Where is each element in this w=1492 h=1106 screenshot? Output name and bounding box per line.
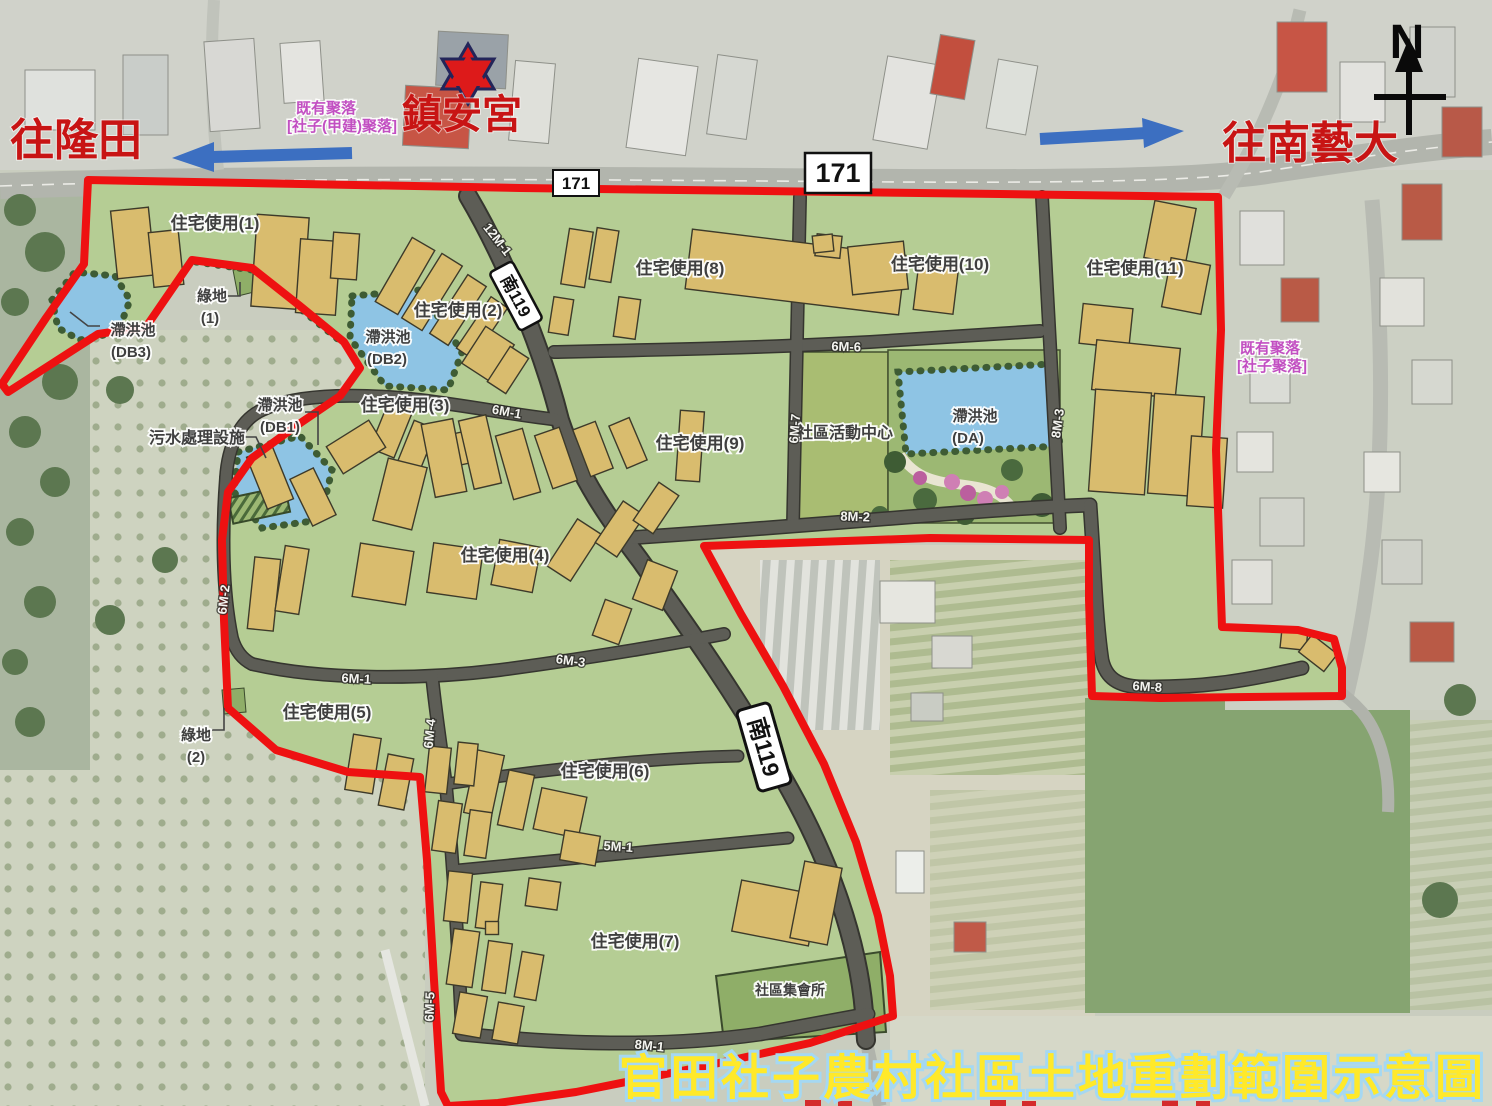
zone-label-r7: 住宅使用(7)	[591, 931, 680, 951]
building	[1402, 184, 1442, 240]
tree	[40, 467, 70, 497]
flower-shrub	[944, 474, 960, 490]
building	[1364, 452, 1400, 492]
zone-label-da: 滯洪池	[952, 407, 997, 425]
tree	[884, 451, 906, 473]
green-field	[1085, 698, 1410, 1013]
building	[1410, 622, 1454, 662]
tree	[9, 416, 41, 448]
zone-label-r3: 住宅使用(3)	[361, 395, 450, 415]
zone-label-r6: 住宅使用(6)	[561, 761, 650, 781]
building	[486, 922, 499, 935]
building	[626, 58, 698, 155]
tree	[152, 547, 178, 573]
building	[911, 693, 943, 721]
flower-shrub	[913, 471, 927, 485]
landmark-name: 鎮安宮	[402, 92, 522, 137]
orchard-field	[0, 760, 425, 1106]
building	[330, 232, 359, 280]
settlement-shezi-line2: [社子聚落]	[1237, 357, 1307, 375]
shield-text: 171	[562, 174, 590, 193]
building	[896, 851, 924, 893]
road-label-5m1: 5M-1	[603, 838, 634, 855]
building	[525, 878, 561, 910]
shield-text: 171	[815, 158, 860, 188]
flower-shrub	[960, 485, 976, 501]
zone-label-r9: 住宅使用(9)	[656, 433, 745, 453]
settlement-jiajian-line2: [社子(甲建)聚落]	[287, 117, 397, 135]
map-canvas: 住宅使用(1) 住宅使用(2) 住宅使用(3) 住宅使用(4) 住宅使用(5) …	[0, 0, 1492, 1106]
road-label-8m2: 8M-2	[840, 508, 870, 524]
land-readjustment-map: 住宅使用(1) 住宅使用(2) 住宅使用(3) 住宅使用(4) 住宅使用(5) …	[0, 0, 1492, 1106]
zone-label-db2: 滯洪池	[365, 328, 410, 346]
zone-label-r4: 住宅使用(4)	[461, 545, 550, 565]
tree	[6, 518, 34, 546]
zone-label-db3: 滯洪池	[110, 321, 155, 339]
building	[1382, 540, 1422, 584]
zone-label-r8: 住宅使用(8)	[636, 258, 725, 278]
tree	[4, 194, 36, 226]
map-title: 官田社子農村社區土地重劃範圍示意圖	[619, 1052, 1486, 1105]
building	[443, 871, 472, 923]
direction-west-label: 往隆田	[10, 116, 142, 165]
building	[1380, 278, 1424, 326]
building	[812, 234, 834, 253]
tree	[25, 232, 65, 272]
building	[352, 543, 414, 605]
route-shield-171-small: 171	[553, 170, 599, 196]
zone-label-r10: 住宅使用(10)	[891, 254, 989, 274]
direction-east-label: 往南藝大	[1222, 119, 1398, 168]
zone-label-db1-code: (DB1)	[260, 419, 300, 436]
zone-label-green1-num: (1)	[201, 310, 219, 327]
building	[954, 922, 986, 952]
crop-rows	[930, 790, 1090, 1010]
building	[1089, 389, 1152, 495]
tree	[1444, 684, 1476, 716]
tree	[1422, 882, 1458, 918]
route-shield-171-large: 171	[805, 153, 871, 193]
zone-label-r2: 住宅使用(2)	[414, 300, 503, 320]
zone-label-sewage: 污水處理設施	[149, 428, 245, 447]
tree	[24, 586, 56, 618]
zone-label-green2: 綠地	[181, 726, 211, 744]
road-label-6m4: 6M-4	[421, 717, 439, 749]
building	[1281, 278, 1319, 322]
settlement-jiajian-line1: 既有聚落	[296, 99, 357, 117]
arrow-east-shaft	[1040, 133, 1146, 139]
building	[204, 38, 260, 131]
tree	[1001, 459, 1023, 481]
crop-rows	[1410, 720, 1492, 1010]
building	[492, 1002, 524, 1044]
building	[1260, 498, 1304, 546]
road-label-6m7: 6M-7	[786, 413, 804, 444]
tree	[1, 288, 29, 316]
building	[1340, 62, 1385, 122]
building	[1442, 107, 1482, 157]
building	[560, 830, 601, 866]
building	[613, 297, 640, 340]
zone-label-community-center: 社區活動中心	[796, 423, 893, 442]
road-label-6m5: 6M-5	[421, 992, 437, 1022]
zone-label-db3-code: (DB3)	[111, 344, 151, 361]
zone-label-r11: 住宅使用(11)	[1086, 258, 1183, 278]
arrow-west-shaft	[212, 153, 352, 157]
tree	[2, 649, 28, 675]
road-label-6m1b: 6M-1	[341, 670, 371, 687]
tree	[15, 707, 45, 737]
zone-label-db1: 滯洪池	[257, 396, 302, 414]
building	[1237, 432, 1273, 472]
settlement-shezi-line1: 既有聚落	[1240, 339, 1301, 357]
zone-label-green2-num: (2)	[187, 749, 205, 766]
road-label-6m8: 6M-8	[1132, 678, 1163, 695]
building	[454, 742, 478, 786]
flower-shrub	[995, 485, 1009, 499]
zone-label-r5: 住宅使用(5)	[283, 702, 372, 722]
zone-label-da-code: (DA)	[952, 430, 984, 447]
building	[1412, 360, 1452, 404]
building	[533, 788, 587, 839]
building	[880, 581, 935, 623]
building	[425, 746, 452, 794]
road-label-6m6: 6M-6	[831, 338, 861, 354]
building	[1277, 22, 1327, 92]
zone-label-db2-code: (DB2)	[367, 351, 407, 368]
zone-label-assembly-hall: 社區集會所	[754, 982, 825, 998]
building	[932, 636, 972, 668]
zone-label-r1: 住宅使用(1)	[171, 213, 260, 233]
building	[1240, 211, 1284, 265]
tree	[95, 605, 125, 635]
tree	[106, 376, 134, 404]
building	[280, 41, 324, 104]
zone-label-green1: 綠地	[197, 287, 227, 305]
building	[1232, 560, 1272, 604]
